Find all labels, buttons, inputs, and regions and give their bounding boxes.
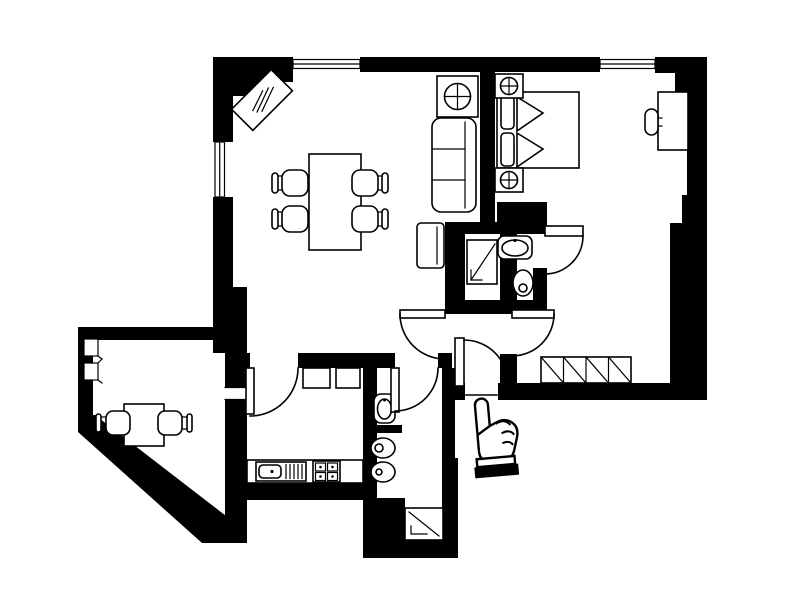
second-bathroom-door [391, 368, 438, 412]
nightstand-with-lamp [495, 168, 523, 192]
floor-plan-canvas [0, 0, 800, 600]
shower [405, 508, 443, 540]
ensuite-bathroom-door [545, 226, 583, 274]
pillow [501, 96, 514, 129]
nightstand-with-lamp [495, 74, 523, 98]
bedroom-door [512, 310, 554, 356]
living-room-door [400, 310, 445, 359]
wall-cabinet [303, 368, 330, 388]
living-room-top-window [293, 60, 360, 69]
dining-table [309, 154, 361, 250]
dining-chair [352, 206, 388, 232]
room-living-dining [232, 70, 478, 268]
wardrobe [541, 357, 631, 383]
sofa [432, 118, 476, 212]
pillow [501, 133, 514, 166]
room-kitchen [247, 368, 363, 483]
bedroom-top-window [600, 60, 655, 69]
balcony-chair [158, 411, 192, 435]
toilet [513, 270, 533, 296]
stove [313, 461, 340, 482]
shower [467, 240, 497, 284]
double-bed [497, 92, 579, 168]
balcony-chair [96, 411, 130, 435]
side-table-with-lamp [437, 76, 478, 117]
armchair [417, 223, 444, 268]
bidet [371, 462, 395, 482]
washbasin [498, 236, 532, 259]
toilet [371, 438, 395, 458]
dining-chair [272, 170, 308, 196]
kitchen-balcony-opening [225, 388, 247, 400]
dining-chair [272, 206, 308, 232]
walls [78, 57, 707, 558]
floor-plan-drawing [0, 0, 800, 600]
dining-chair [352, 170, 388, 196]
desk [658, 92, 688, 150]
wall-cabinet [336, 368, 360, 388]
sink-unit [256, 462, 306, 481]
room-balcony [79, 334, 192, 446]
living-room-left-window [215, 142, 225, 197]
hand-pointer-icon [468, 396, 521, 479]
kitchen-door [246, 368, 298, 416]
